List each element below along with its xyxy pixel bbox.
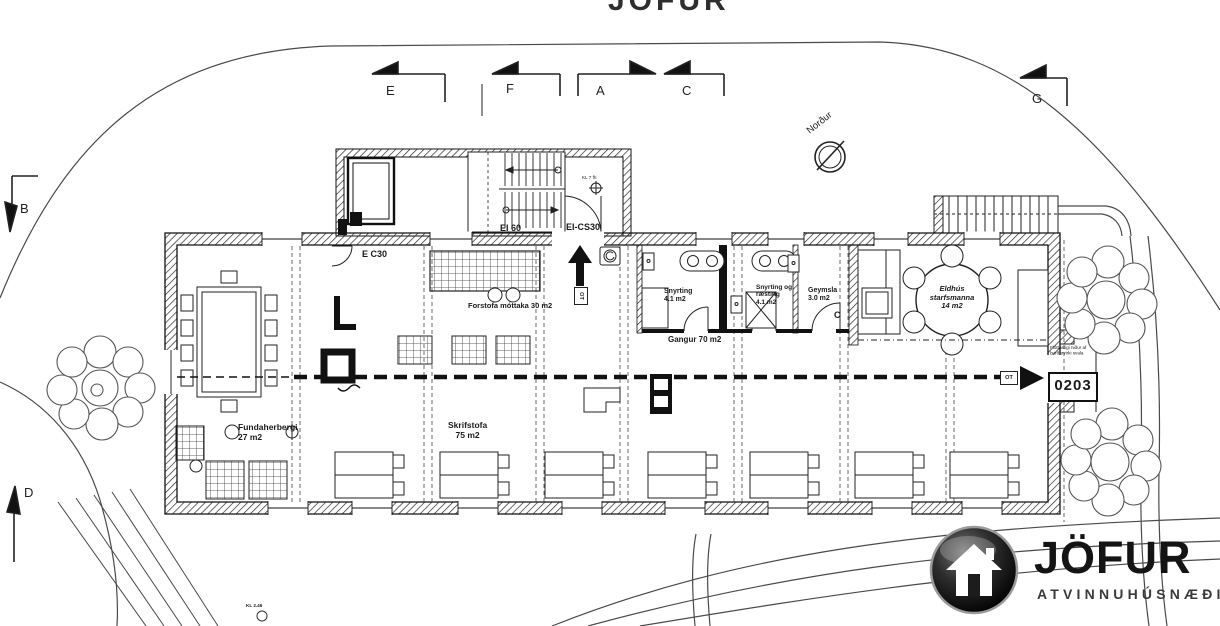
jofur-logo: JÖFUR ATVINNUHÚSNÆÐI (928, 520, 1220, 624)
room-label-fundaherbergi: Fundaherbergi 27 m2 (238, 423, 298, 443)
door-closer-note: KL 7 fh (582, 176, 596, 181)
fire-rating-eics30: EI-CS30 (566, 222, 600, 232)
compass-icon (815, 141, 845, 172)
logo-brand-text: JÖFUR (1034, 532, 1192, 584)
site-plan: JÖFUR E F A C G B D Norður E C30 EI 60 E… (0, 0, 1220, 626)
marker-label-f: F (506, 82, 514, 97)
fire-rating-ec30: E C30 (362, 249, 387, 259)
exit-right-arrow-icon (1020, 366, 1044, 390)
section-marker-c (664, 61, 724, 96)
room-label-skrifstofa: Skrifstofa 75 m2 (448, 421, 487, 441)
top-watermark: JÖFUR (608, 0, 730, 19)
tree-right-bottom (1061, 408, 1161, 516)
room-name2: ræsting (756, 291, 792, 298)
marker-label-g: G (1032, 92, 1042, 107)
section-cut-line (177, 352, 1044, 414)
section-marker-a (578, 61, 656, 96)
room-label-eldhus: Eldhús starfsmanna 14 m2 (926, 285, 978, 311)
room-label-snyrting: Snyrting 4.1 m2 (664, 288, 692, 304)
room-name: Geymsla (808, 287, 837, 295)
marker-label-e: E (386, 84, 395, 99)
room-area: 3.0 m2 (808, 295, 837, 303)
exterior-stair (934, 196, 1058, 233)
ot-stamp-right: OT (1000, 371, 1018, 385)
marker-label-a: A (596, 84, 605, 99)
section-marker-e (372, 62, 445, 102)
marker-label-c: C (682, 84, 691, 99)
survey-point-icon (257, 611, 267, 621)
room-name: Snyrting (664, 288, 692, 296)
exit-up-arrow-icon (568, 245, 592, 286)
logo-subtitle-text: ATVINNUHÚSNÆÐI (1037, 586, 1220, 602)
room-name: Snyrting og (756, 284, 792, 291)
room-area: 14 m2 (926, 302, 978, 311)
room-area: 4.1 m2 (664, 296, 692, 304)
door-label-c: C (834, 310, 841, 320)
room-area: 75 m2 (448, 431, 487, 441)
marker-label-b: B (20, 202, 29, 217)
rotation-symbol-icon (600, 247, 620, 265)
room-area: 27 m2 (238, 433, 298, 443)
room-area: 4.1 m2 (756, 299, 792, 306)
level-note: KL 2.46 (246, 604, 262, 609)
room-label-snyrting-raesting: Snyrting og ræsting 4.1 m2 (756, 284, 792, 306)
section-marker-f (492, 62, 560, 96)
logo-house-icon (928, 524, 1020, 616)
room-number-badge: 0203 (1048, 372, 1098, 402)
section-marker-d (7, 486, 20, 562)
room-label-geymsla: Geymsla 3.0 m2 (808, 287, 837, 303)
escape-route-note: Flóttastigi niður af burðarvirki svala (1050, 346, 1086, 357)
escape-line2: burðarvirki svala (1050, 351, 1086, 356)
ot-stamp-up: OT (574, 287, 588, 305)
fire-rating-ei60: EI 60 (500, 223, 521, 233)
room-label-gangur: Gangur 70 m2 (668, 335, 721, 344)
marker-label-d: D (24, 486, 33, 501)
tree-left (47, 336, 155, 440)
room-label-forstofa: Forstofa móttaka 30 m2 (468, 302, 552, 311)
